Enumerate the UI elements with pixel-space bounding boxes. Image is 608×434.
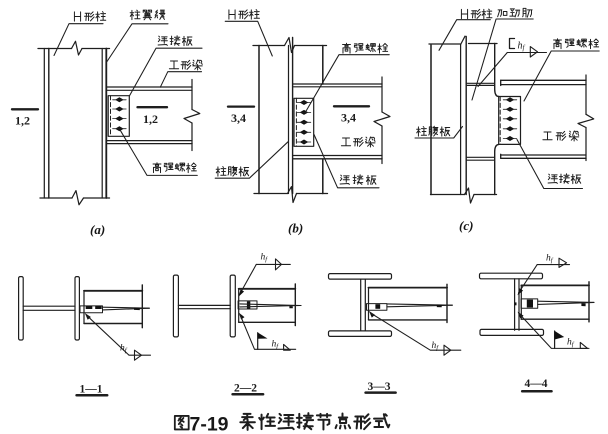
svg-text:(c): (c) — [459, 218, 473, 233]
svg-text:(b): (b) — [288, 221, 303, 236]
svg-text:(a): (a) — [90, 222, 105, 237]
svg-text:3—3: 3—3 — [368, 381, 391, 393]
svg-text:1—1: 1—1 — [80, 384, 103, 396]
svg-text:4—4: 4—4 — [525, 378, 548, 390]
svg-text:3,4: 3,4 — [231, 111, 246, 125]
svg-text:2—2: 2—2 — [234, 383, 257, 395]
svg-text:3,4: 3,4 — [341, 111, 356, 125]
svg-text:1,2: 1,2 — [143, 112, 158, 126]
svg-text:1,2: 1,2 — [15, 114, 30, 128]
svg-text:7-19: 7-19 — [190, 413, 229, 434]
